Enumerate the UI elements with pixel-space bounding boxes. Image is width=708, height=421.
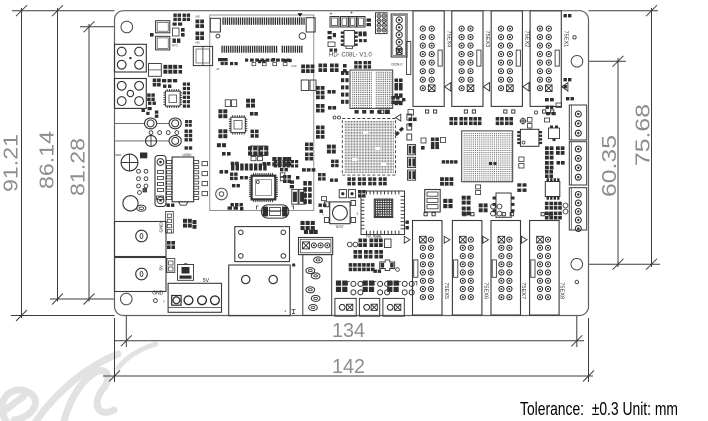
svg-text:142: 142 <box>332 356 365 378</box>
svg-text:75EX2: 75EX2 <box>524 31 530 48</box>
svg-text:Tolerance: ±0.3 Unit: mm: Tolerance: ±0.3 Unit: mm <box>520 398 678 419</box>
svg-text:M5: M5 <box>196 15 200 19</box>
svg-text:+: + <box>330 12 333 18</box>
svg-text:GND: GND <box>159 222 164 233</box>
svg-text:GND: GND <box>152 291 164 297</box>
svg-text:USB0: USB0 <box>183 153 192 157</box>
svg-text:75EX6: 75EX6 <box>483 282 489 299</box>
svg-text:LN2: LN2 <box>291 64 297 68</box>
svg-text:75.68: 75.68 <box>633 104 655 166</box>
svg-text:+: + <box>350 11 353 17</box>
svg-text:86.14: 86.14 <box>37 131 59 189</box>
svg-text:75EX5: 75EX5 <box>443 282 449 299</box>
svg-text:M6: M6 <box>196 41 200 45</box>
svg-text:RFC: RFC <box>172 44 179 48</box>
svg-text:DCIN-C: DCIN-C <box>392 63 404 67</box>
svg-text:J2: J2 <box>216 67 220 71</box>
svg-text:5V: 5V <box>159 264 164 271</box>
svg-text:81.28: 81.28 <box>68 138 90 196</box>
svg-text:60.35: 60.35 <box>599 135 621 197</box>
svg-text:TEST: TEST <box>335 225 344 229</box>
svg-text:75EX7: 75EX7 <box>520 282 526 299</box>
svg-text:HD- C08L- V1.0: HD- C08L- V1.0 <box>329 53 372 59</box>
svg-text:75EX3: 75EX3 <box>484 31 490 48</box>
svg-text:134: 134 <box>332 320 365 342</box>
svg-text:91.21: 91.21 <box>1 134 23 192</box>
svg-text:75EX4: 75EX4 <box>445 31 451 48</box>
svg-text:75EX1: 75EX1 <box>563 31 569 48</box>
svg-text:1: 1 <box>163 300 165 304</box>
svg-text:5V: 5V <box>203 278 210 284</box>
svg-text:U100: U100 <box>374 236 382 240</box>
svg-text:75EX8: 75EX8 <box>558 282 564 299</box>
svg-text:2: 2 <box>357 212 359 216</box>
